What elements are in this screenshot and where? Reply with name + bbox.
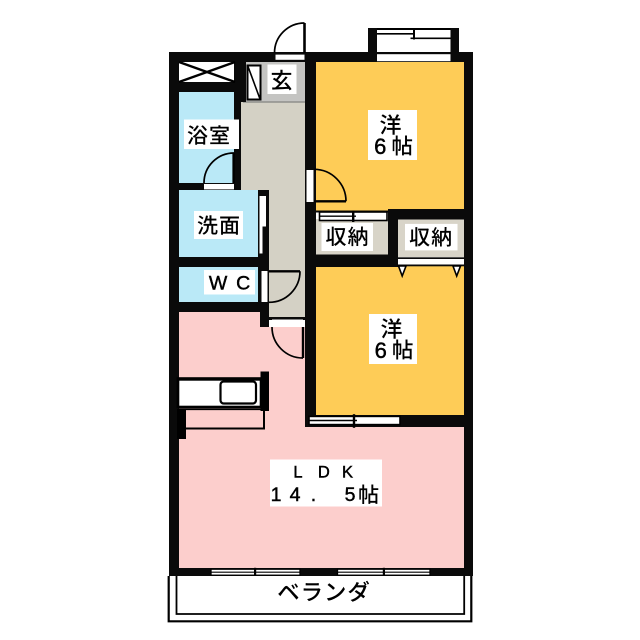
svg-text:D: D [318, 464, 330, 482]
svg-text:6: 6 [375, 338, 387, 363]
svg-text:K: K [342, 464, 353, 482]
svg-text:6: 6 [374, 134, 386, 159]
svg-text:.: . [311, 484, 316, 506]
svg-text:1: 1 [271, 484, 282, 506]
svg-text:5: 5 [345, 484, 356, 506]
svg-text:L: L [293, 464, 302, 482]
svg-text:C: C [236, 272, 250, 294]
svg-text:4: 4 [290, 484, 301, 506]
svg-text:W: W [209, 272, 228, 294]
